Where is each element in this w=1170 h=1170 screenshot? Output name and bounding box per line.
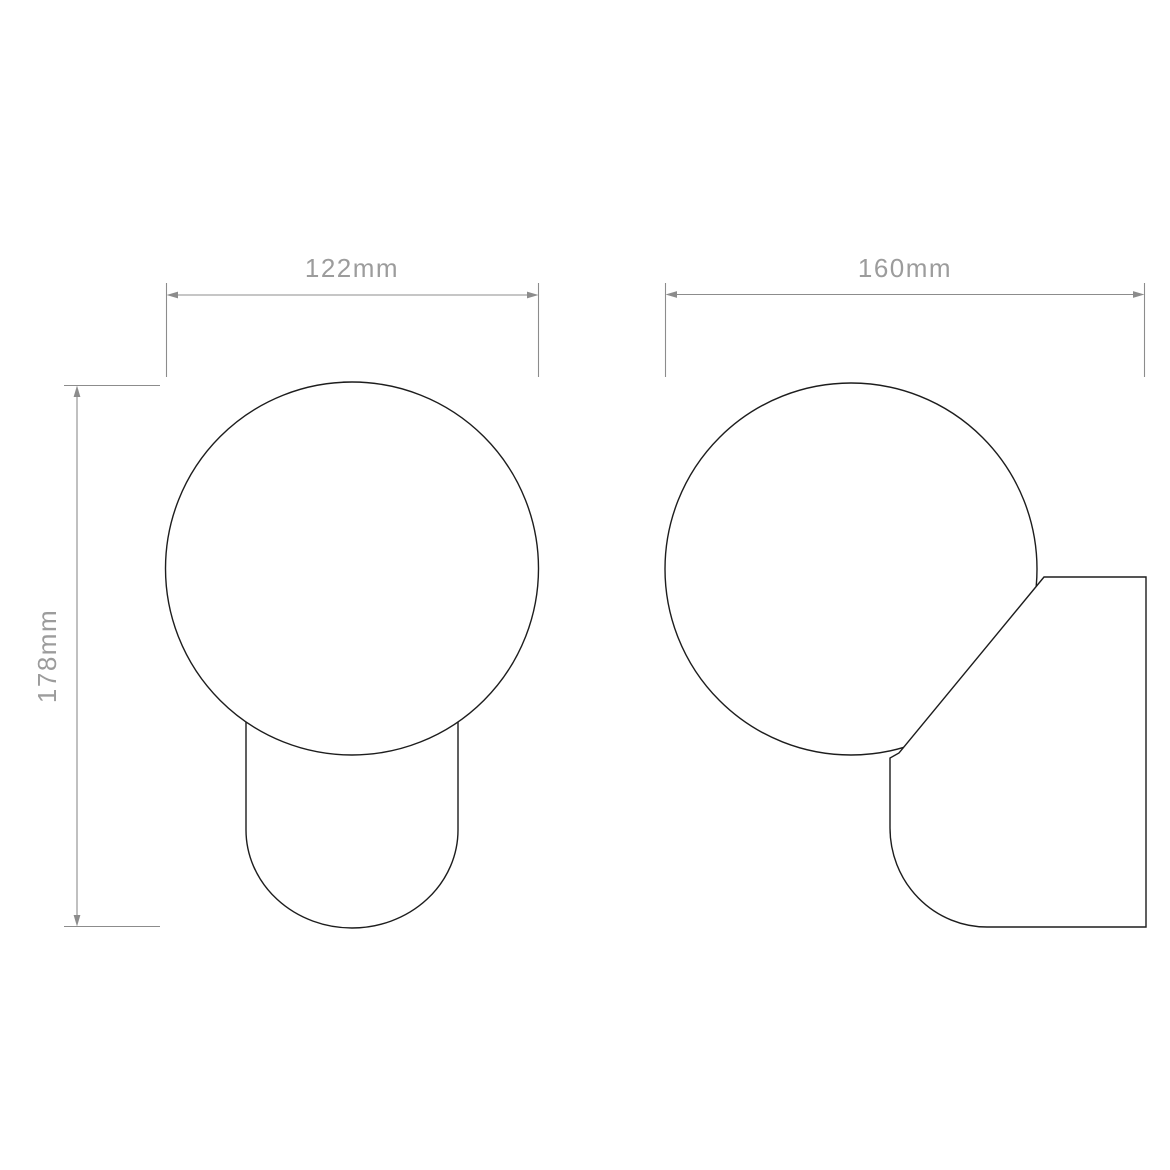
dimension-front-width: 122mm bbox=[167, 253, 539, 377]
dimension-front-height: 178mm bbox=[32, 386, 160, 927]
dimension-label-side-width: 160mm bbox=[858, 253, 952, 283]
technical-drawing-page: 122mm 160mm 178mm bbox=[0, 0, 1170, 1170]
dimension-label-front-width: 122mm bbox=[305, 253, 399, 283]
dimension-label-front-height: 178mm bbox=[32, 609, 62, 703]
front-view bbox=[166, 382, 539, 928]
arrowhead-up-icon bbox=[74, 386, 81, 398]
technical-drawing-canvas: 122mm 160mm 178mm bbox=[0, 0, 1170, 1170]
globe-outline-front bbox=[166, 382, 539, 755]
arrowhead-right-icon bbox=[1133, 291, 1145, 298]
arrowhead-down-icon bbox=[74, 915, 81, 927]
dimension-side-width: 160mm bbox=[666, 253, 1145, 377]
arrowhead-right-icon bbox=[527, 292, 539, 299]
arrowhead-left-icon bbox=[666, 291, 678, 298]
side-view bbox=[665, 383, 1146, 927]
arrowhead-left-icon bbox=[167, 292, 179, 299]
